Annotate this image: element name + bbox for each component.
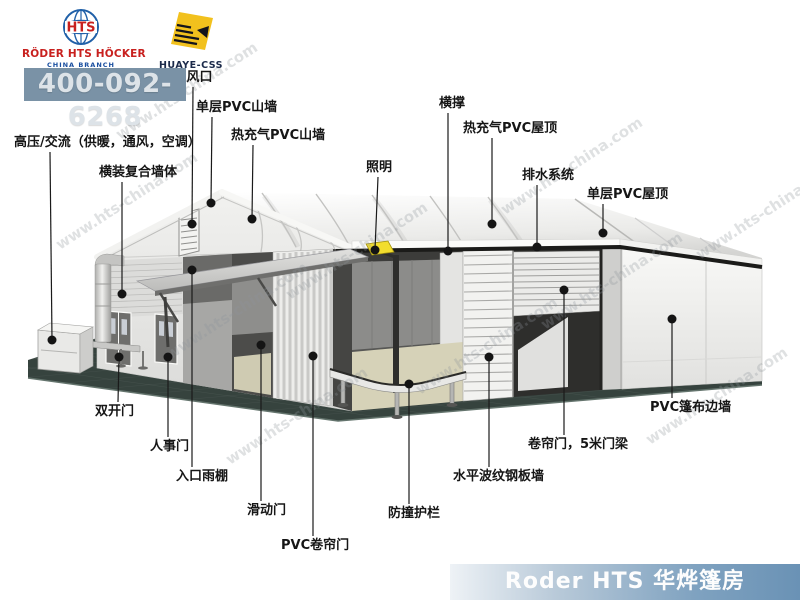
callout-dot bbox=[164, 353, 173, 362]
roder-badge: HTS bbox=[66, 21, 95, 36]
callout-dot bbox=[533, 243, 542, 252]
roder-logo-title: RÖDER HTS HÖCKER bbox=[22, 48, 140, 60]
callout-dot bbox=[309, 352, 318, 361]
callout-label: 人事门 bbox=[150, 438, 189, 454]
footer-banner-text: Roder HTS 华烨篷房 bbox=[505, 569, 745, 594]
roder-logo: HTS RÖDER HTS HÖCKER CHINA BRANCH bbox=[22, 8, 140, 69]
phone-number: 400-092-6268 bbox=[24, 68, 186, 101]
callout-line bbox=[211, 117, 212, 203]
callout-dot bbox=[599, 229, 608, 238]
callout-dot bbox=[488, 220, 497, 229]
callout-dot bbox=[371, 246, 380, 255]
callout-dot bbox=[188, 220, 197, 229]
footer-banner: Roder HTS 华烨篷房 bbox=[450, 564, 800, 600]
callout-dot bbox=[48, 336, 57, 345]
callout-label: 入口雨棚 bbox=[176, 468, 228, 484]
callout-label: 防撞护栏 bbox=[388, 505, 440, 521]
callout-dot bbox=[560, 286, 569, 295]
callout-label: 水平波纹钢板墙 bbox=[453, 468, 544, 484]
globe-icon: HTS bbox=[48, 8, 114, 48]
callout-dot bbox=[257, 341, 266, 350]
callout-dot bbox=[668, 315, 677, 324]
callout-label: PVC篷布边墙 bbox=[650, 399, 731, 415]
callout-label: 横撑 bbox=[439, 95, 465, 111]
callout-label: 照明 bbox=[366, 160, 392, 175]
callout-label: 热充气PVC屋顶 bbox=[463, 120, 557, 136]
callout-dot bbox=[118, 290, 127, 299]
callout-label: 排水系统 bbox=[522, 167, 574, 183]
callout-dot bbox=[207, 199, 216, 208]
callout-line bbox=[50, 152, 52, 340]
callout-dot bbox=[405, 380, 414, 389]
callout-dot bbox=[188, 266, 197, 275]
callout-label: 双开门 bbox=[95, 403, 134, 419]
callout-label: 卷帘门，5米门梁 bbox=[528, 436, 629, 452]
callout-label: PVC卷帘门 bbox=[281, 537, 349, 553]
huaye-logo-icon bbox=[167, 12, 215, 54]
callout-line bbox=[192, 87, 193, 224]
callout-label: 单层PVC屋顶 bbox=[587, 186, 668, 202]
callout-dot bbox=[444, 247, 453, 256]
callout-label: 单层PVC山墙 bbox=[196, 99, 277, 115]
huaye-logo: HUAYE-CSS bbox=[148, 12, 234, 71]
callout-dot bbox=[248, 215, 257, 224]
callout-label: 高压/交流（供暖，通风，空调） bbox=[14, 134, 201, 150]
page: www.hts-china.comwww.hts-china.comwww.ht… bbox=[0, 0, 800, 600]
callout-label: 热充气PVC山墙 bbox=[231, 127, 325, 143]
callout-label: 横装复合墙体 bbox=[99, 164, 178, 180]
callout-label: 滑动门 bbox=[247, 502, 286, 518]
watermark-text: www.hts-china.com bbox=[692, 158, 800, 263]
callout-dot bbox=[115, 353, 124, 362]
callout-dot bbox=[485, 353, 494, 362]
